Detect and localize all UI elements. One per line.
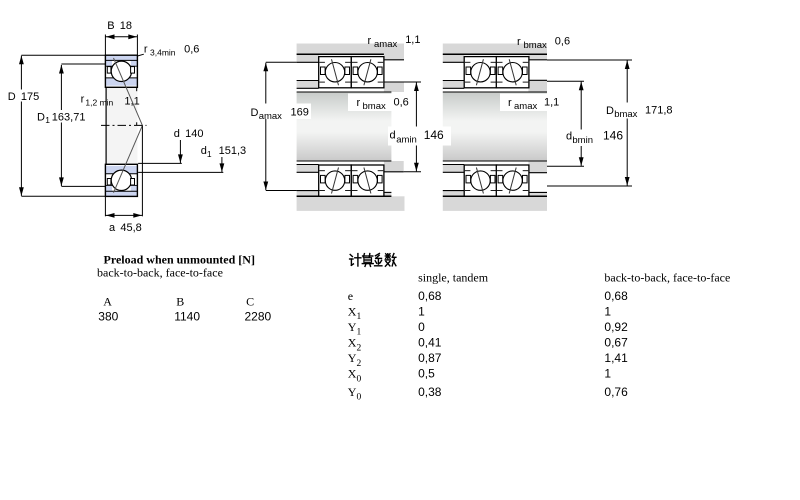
svg-text:r: r	[357, 97, 361, 109]
svg-text:0,68: 0,68	[418, 289, 442, 303]
svg-text:r: r	[81, 94, 85, 106]
svg-text:Y: Y	[348, 320, 357, 334]
svg-text:0: 0	[357, 374, 362, 384]
svg-text:171,8: 171,8	[645, 105, 673, 117]
svg-text:0,6: 0,6	[555, 36, 570, 48]
svg-text:0,76: 0,76	[604, 385, 628, 399]
svg-text:0,67: 0,67	[604, 336, 628, 350]
svg-text:amax: amax	[259, 111, 282, 122]
svg-text:Y: Y	[348, 351, 357, 365]
svg-text:C: C	[246, 295, 254, 309]
svg-text:0: 0	[357, 393, 362, 403]
svg-text:163,71: 163,71	[52, 112, 86, 124]
svg-text:a 45,8: a 45,8	[109, 222, 142, 234]
svg-text:380: 380	[98, 310, 118, 324]
svg-text:Y: Y	[348, 385, 357, 399]
svg-text:0,68: 0,68	[604, 289, 628, 303]
svg-text:D: D	[37, 112, 45, 124]
svg-text:1: 1	[357, 328, 362, 338]
svg-text:2: 2	[357, 359, 362, 369]
svg-text:1,1: 1,1	[124, 95, 139, 107]
svg-text:0,87: 0,87	[418, 351, 442, 365]
svg-text:1,41: 1,41	[604, 351, 628, 365]
svg-text:bmin: bmin	[572, 135, 593, 146]
svg-text:d 140: d 140	[174, 128, 204, 140]
svg-text:3,4min: 3,4min	[150, 48, 176, 58]
svg-text:d: d	[566, 131, 572, 143]
svg-text:back-to-back, face-to-face: back-to-back, face-to-face	[604, 271, 730, 285]
svg-text:Preload when unmounted [N]: Preload when unmounted [N]	[104, 253, 255, 267]
svg-text:1: 1	[357, 312, 362, 322]
svg-text:2280: 2280	[245, 310, 272, 324]
svg-text:X: X	[348, 304, 357, 318]
svg-text:1: 1	[207, 149, 212, 159]
svg-text:r: r	[144, 43, 148, 55]
svg-text:0,6: 0,6	[184, 44, 199, 56]
svg-text:146: 146	[424, 128, 444, 142]
svg-text:D: D	[251, 107, 259, 119]
svg-text:B 18: B 18	[107, 20, 132, 32]
svg-text:0,41: 0,41	[418, 336, 442, 350]
svg-text:0,92: 0,92	[604, 320, 628, 334]
svg-text:B: B	[176, 295, 184, 309]
svg-text:1,1: 1,1	[405, 34, 420, 46]
svg-text:r: r	[508, 97, 512, 109]
svg-text:1: 1	[45, 115, 50, 125]
svg-text:amax: amax	[374, 39, 397, 50]
svg-text:1140: 1140	[174, 310, 200, 324]
svg-text:single, tandem: single, tandem	[418, 271, 489, 285]
svg-text:1,2 min: 1,2 min	[85, 98, 113, 108]
svg-text:1: 1	[604, 304, 611, 318]
svg-text:amax: amax	[514, 101, 537, 112]
svg-text:amin: amin	[396, 135, 417, 146]
svg-text:2: 2	[357, 343, 362, 353]
svg-text:D: D	[606, 105, 614, 117]
svg-text:A: A	[103, 295, 112, 309]
svg-text:169: 169	[291, 107, 309, 119]
svg-text:0,6: 0,6	[394, 97, 409, 109]
svg-text:X: X	[348, 367, 357, 381]
svg-text:0,38: 0,38	[418, 385, 442, 399]
svg-text:r: r	[517, 36, 521, 48]
svg-text:0: 0	[418, 320, 425, 334]
svg-text:e: e	[348, 289, 353, 303]
svg-text:1: 1	[604, 367, 611, 381]
svg-text:151,3: 151,3	[219, 145, 247, 157]
svg-text:r: r	[368, 35, 372, 47]
svg-text:d: d	[390, 130, 396, 142]
svg-text:bmax: bmax	[363, 101, 386, 112]
svg-text:1,1: 1,1	[544, 97, 559, 109]
svg-text:0,5: 0,5	[418, 367, 435, 381]
svg-text:D 175: D 175	[8, 91, 40, 103]
svg-text:bmax: bmax	[524, 40, 547, 51]
svg-text:146: 146	[603, 129, 623, 143]
svg-text:X: X	[348, 336, 357, 350]
svg-text:back-to-back, face-to-face: back-to-back, face-to-face	[97, 266, 223, 280]
svg-text:bmax: bmax	[614, 109, 637, 120]
svg-text:1: 1	[418, 304, 425, 318]
